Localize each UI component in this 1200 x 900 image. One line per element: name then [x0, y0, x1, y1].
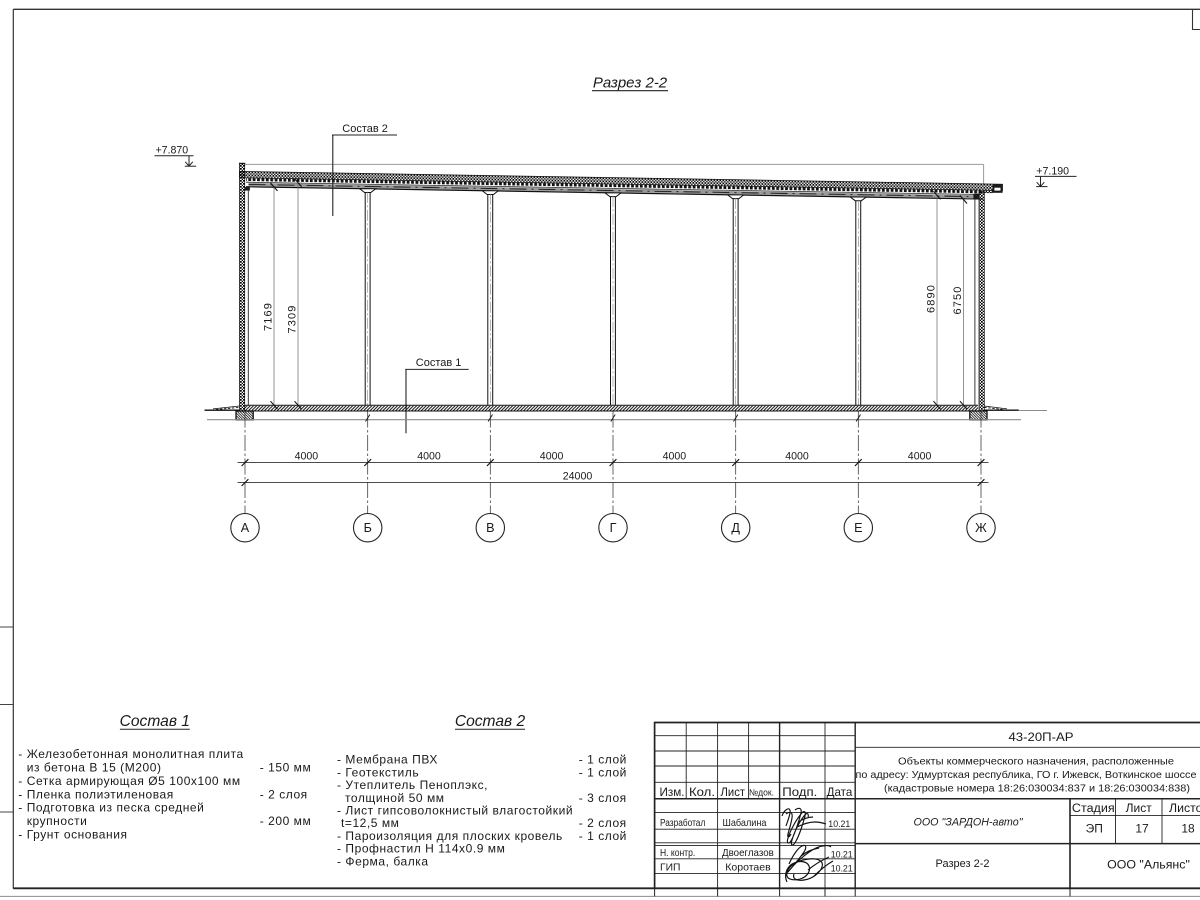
svg-text:Изм.: Изм. — [660, 785, 685, 799]
svg-text:4000: 4000 — [785, 451, 809, 463]
svg-text:- Железобетонная монолитная п: - Железобетонная монолитная плита — [18, 747, 243, 761]
svg-text:Лист: Лист — [721, 785, 746, 799]
svg-text:18: 18 — [1181, 822, 1195, 836]
svg-text:Состав 2: Состав 2 — [342, 123, 388, 135]
svg-text:Н. контр.: Н. контр. — [660, 848, 695, 859]
svg-text:- Грунт основания: - Грунт основания — [18, 827, 127, 841]
svg-text:- Пленка полиэтиленовая: - Пленка полиэтиленовая — [18, 787, 174, 801]
svg-text:4000: 4000 — [295, 451, 319, 463]
svg-text:Двоеглазов: Двоеглазов — [722, 848, 774, 859]
svg-text:24000: 24000 — [563, 471, 593, 483]
svg-text:Листов: Листов — [1169, 803, 1200, 815]
svg-text:- 3 слоя: - 3 слоя — [579, 791, 627, 805]
svg-text:- 200 мм: - 200 мм — [260, 814, 312, 828]
svg-text:10.21: 10.21 — [831, 864, 853, 874]
svg-text:- 1 слой: - 1 слой — [579, 829, 627, 843]
svg-text:- 1 слой: - 1 слой — [579, 765, 627, 779]
svg-text:+7.190: +7.190 — [1036, 165, 1069, 177]
svg-text:10.21: 10.21 — [828, 819, 850, 829]
svg-text:Коротаев: Коротаев — [725, 863, 770, 874]
svg-text:А: А — [241, 521, 250, 535]
svg-text:- 150 мм: - 150 мм — [260, 761, 312, 775]
svg-text:43-20П-АР: 43-20П-АР — [1009, 730, 1074, 744]
svg-text:крупности: крупности — [27, 814, 88, 828]
svg-text:4000: 4000 — [908, 451, 932, 463]
svg-text:Б: Б — [364, 521, 372, 535]
svg-text:Лист: Лист — [1126, 803, 1153, 815]
svg-text:- Ферма, балка: - Ферма, балка — [337, 854, 429, 868]
svg-text:Подп.: Подп. — [782, 785, 817, 799]
svg-text:из бетона В 15 (М200): из бетона В 15 (М200) — [27, 761, 162, 775]
svg-text:17: 17 — [1135, 822, 1149, 836]
svg-text:6890: 6890 — [926, 284, 938, 313]
svg-text:Объекты коммерческого назначен: Объекты коммерческого назначения, распол… — [898, 755, 1174, 767]
svg-text:Шабалина: Шабалина — [723, 817, 767, 829]
svg-text:по адресу: Удмуртская республи: по адресу: Удмуртская республика, ГО г. … — [856, 769, 1197, 781]
svg-text:Разработал: Разработал — [660, 817, 705, 829]
svg-text:ЭП: ЭП — [1086, 822, 1103, 836]
svg-text:10.21: 10.21 — [831, 850, 853, 860]
svg-text:ООО "ЗАРДОН-авто": ООО "ЗАРДОН-авто" — [914, 817, 1024, 829]
svg-text:Дата: Дата — [827, 785, 853, 799]
svg-text:7169: 7169 — [263, 302, 275, 331]
svg-text:Стадия: Стадия — [1072, 803, 1115, 815]
svg-text:- Подготовка из песка средней: - Подготовка из песка средней — [18, 801, 204, 815]
svg-text:6750: 6750 — [952, 286, 964, 315]
svg-text:Г: Г — [610, 521, 617, 535]
svg-text:Е: Е — [854, 521, 862, 535]
svg-text:ГИП: ГИП — [660, 863, 680, 874]
svg-text:В: В — [486, 521, 494, 535]
svg-text:+7.870: +7.870 — [156, 144, 189, 156]
svg-text:Разрез 2-2: Разрез 2-2 — [935, 858, 989, 870]
svg-text:Состав 1: Состав 1 — [120, 713, 190, 730]
svg-text:Кол.: Кол. — [689, 785, 715, 799]
svg-text:Разрез 2-2: Разрез 2-2 — [593, 74, 668, 91]
svg-text:7309: 7309 — [287, 305, 299, 334]
svg-text:- Сетка армирующая Ø5 100х100: - Сетка армирующая Ø5 100х100 мм — [18, 774, 240, 788]
svg-text:4000: 4000 — [417, 451, 441, 463]
svg-text:Д: Д — [731, 521, 740, 535]
svg-text:№док.: №док. — [749, 787, 774, 797]
svg-text:- 2 слоя: - 2 слоя — [260, 787, 308, 801]
svg-text:4000: 4000 — [663, 451, 687, 463]
svg-text:Состав 2: Состав 2 — [455, 713, 526, 730]
svg-text:Состав 1: Состав 1 — [416, 357, 462, 369]
svg-text:ООО "Альянс": ООО "Альянс" — [1107, 858, 1190, 872]
svg-text:(кадастровые номера 18:26:0300: (кадастровые номера 18:26:030034:837 и 1… — [884, 783, 1190, 794]
svg-text:Ж: Ж — [975, 521, 987, 535]
svg-text:4000: 4000 — [540, 451, 564, 463]
